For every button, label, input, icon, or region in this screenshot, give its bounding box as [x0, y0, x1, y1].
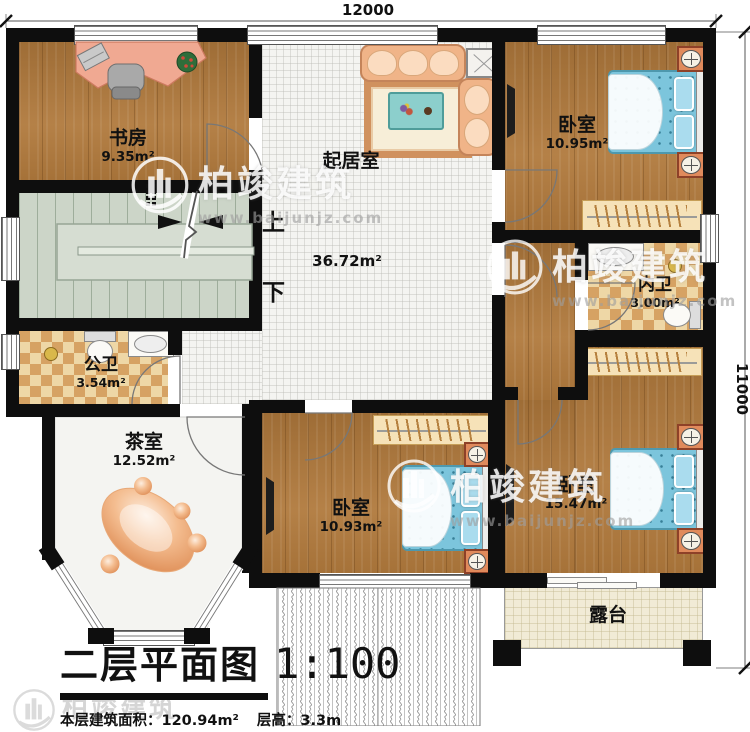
bed-duvet	[608, 74, 663, 150]
room-label-study: 书房 9.35m²	[101, 128, 154, 165]
wall	[437, 28, 538, 42]
room-label-public-bath: 公卫 3.54m²	[76, 356, 125, 390]
wall	[197, 28, 248, 42]
sofa-cushion	[464, 118, 490, 148]
room-name: 卧室	[545, 475, 608, 497]
bed-mid	[402, 465, 492, 551]
title-underline	[60, 693, 268, 700]
room-label-tea-room: 茶室 12.52m²	[113, 432, 176, 469]
watermark-logo-icon	[12, 688, 56, 732]
tv-bedroom-right	[506, 464, 514, 526]
room-label-bedroom-right: 卧室 15.47m²	[545, 475, 608, 512]
wall	[168, 331, 182, 355]
stairs-up-label: 上	[262, 203, 285, 237]
room-label-inner-bath: 内卫 3.00m²	[630, 276, 679, 310]
dimension-height: 11000	[733, 359, 750, 419]
wall	[505, 387, 518, 400]
bay-window	[39, 542, 258, 644]
wall	[249, 400, 262, 573]
wardrobe-mid	[373, 415, 490, 445]
room-label-living: 起居室	[322, 151, 379, 173]
sofa-cushion	[398, 50, 428, 76]
terrace-post	[493, 640, 521, 666]
wall	[660, 573, 716, 588]
sink-basin	[134, 335, 167, 353]
sliding-door	[577, 582, 637, 589]
window	[75, 26, 197, 44]
sofa-cushion	[464, 85, 490, 115]
bed-duvet	[402, 469, 452, 547]
wall	[249, 573, 320, 588]
bed-duvet	[610, 452, 664, 526]
wall	[6, 180, 250, 193]
room-label-bedroom-mid: 卧室 10.93m²	[320, 498, 383, 535]
wall	[505, 573, 547, 588]
room-area-living: 36.72m²	[312, 253, 382, 270]
room-name: 书房	[101, 128, 154, 150]
bed-pillow	[461, 511, 480, 545]
room-area: 10.95m²	[546, 137, 609, 153]
living-room-floor-ext	[182, 331, 262, 404]
sofa-back	[360, 44, 466, 82]
wall	[6, 318, 250, 331]
wardrobe-right	[582, 348, 702, 376]
window	[538, 26, 665, 44]
wall	[703, 262, 716, 575]
window	[701, 215, 718, 262]
nightstand	[677, 424, 705, 450]
wall	[575, 243, 588, 280]
nightstand	[677, 152, 705, 178]
room-area: 36.72m²	[312, 253, 382, 270]
room-area: 10.93m²	[320, 520, 383, 536]
sink-basin	[596, 247, 634, 266]
wardrobe-top	[582, 200, 702, 232]
stairs-down-label: 下	[262, 273, 285, 307]
lamp	[668, 259, 682, 273]
room-name: 卧室	[320, 498, 383, 520]
wall	[492, 295, 505, 400]
wall	[505, 230, 716, 243]
nightstand	[677, 46, 705, 72]
window	[248, 26, 437, 44]
nightstand	[464, 442, 490, 467]
wall	[249, 170, 262, 331]
wall	[470, 573, 505, 588]
tea-room-art	[86, 471, 210, 589]
room-area: 9.35m²	[101, 150, 154, 166]
floor-area-text: 本层建筑面积：120.94m²	[60, 709, 239, 730]
room-label-terrace: 露台	[589, 605, 627, 627]
room-name: 茶室	[113, 432, 176, 454]
wall	[6, 404, 180, 417]
tv-bedroom-top	[507, 84, 515, 138]
wall	[488, 400, 505, 573]
sofa-cushion	[429, 50, 459, 76]
room-area: 3.54m²	[76, 376, 125, 390]
window	[2, 335, 19, 369]
wall	[6, 369, 19, 404]
wall	[42, 417, 55, 560]
room-name: 露台	[589, 605, 627, 627]
table-flowers	[398, 102, 414, 118]
dimension-width: 12000	[342, 1, 394, 19]
wall	[262, 400, 305, 413]
bed-top	[608, 70, 706, 154]
bed-pillow	[674, 77, 694, 111]
bed-right	[610, 448, 706, 530]
room-name: 卧室	[546, 115, 609, 137]
stairwell-floor	[19, 193, 250, 318]
nightstand	[464, 549, 490, 574]
sofa-cushion	[367, 50, 397, 76]
room-area: 12.52m²	[113, 454, 176, 470]
bed-pillow	[461, 473, 480, 507]
table-dish	[424, 107, 432, 115]
wall	[703, 28, 716, 215]
wall	[352, 400, 492, 413]
wall	[575, 330, 716, 347]
room-name: 内卫	[630, 276, 679, 296]
bed-pillow	[674, 455, 694, 488]
window	[2, 218, 19, 280]
wall	[492, 222, 505, 243]
lamp	[44, 347, 58, 361]
bed-pillow	[674, 115, 694, 149]
wall	[492, 28, 505, 170]
plan-title: 二层平面图	[60, 634, 260, 689]
floor-plan-page: { "title": { "name": "二层平面图", "scale": "…	[0, 0, 750, 726]
bed-pillow	[674, 492, 694, 525]
coffee-table	[388, 92, 444, 130]
room-area: 3.00m²	[630, 296, 679, 310]
room-area: 15.47m²	[545, 497, 608, 513]
floor-height-text: 层高：3.3m	[257, 709, 341, 730]
tv-bedroom-mid	[266, 477, 274, 535]
window	[320, 575, 470, 588]
wall	[575, 347, 588, 387]
room-label-bedroom-top: 卧室 10.95m²	[546, 115, 609, 152]
terrace-post	[683, 640, 711, 666]
nightstand	[677, 528, 705, 554]
plan-scale: 1:100	[274, 639, 400, 688]
room-name: 起居室	[322, 151, 379, 173]
title-block: 二层平面图 1:100 本层建筑面积：120.94m² 层高：3.3m	[60, 634, 400, 730]
corridor-floor	[505, 243, 575, 400]
wall	[558, 387, 588, 400]
room-name: 公卫	[76, 356, 125, 376]
